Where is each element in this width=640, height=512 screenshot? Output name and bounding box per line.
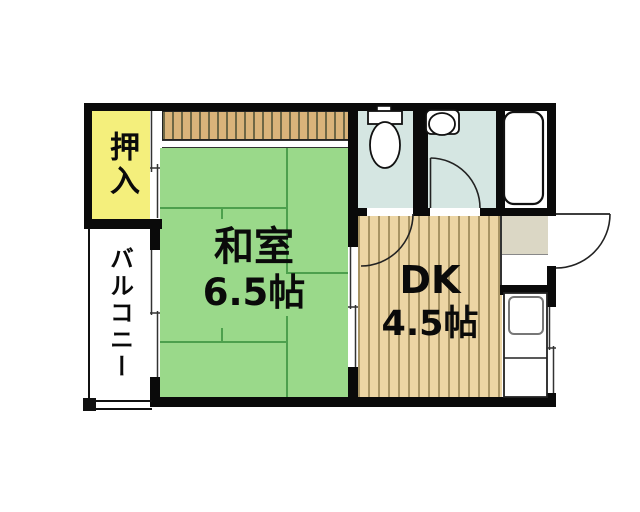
wall-toilet-washroom: [413, 111, 428, 208]
tatami-mat-line: [160, 207, 287, 209]
entry-tile-edge: [502, 254, 548, 255]
tatami-mat-line: [286, 316, 288, 397]
wall-right-mid: [547, 266, 556, 307]
entry-step: [502, 255, 548, 285]
wall-bottom: [150, 397, 556, 407]
tatami-mat-line: [160, 341, 287, 343]
wall-center-upper: [348, 111, 358, 247]
wall-sanitary-bottom-a: [348, 208, 367, 216]
wall-right-lower: [547, 393, 556, 407]
washitsu-name: 和室: [160, 224, 348, 270]
entry-tile: [502, 216, 548, 255]
kitchen-counter-icon: [504, 293, 547, 397]
bathroom-floor: [505, 111, 548, 208]
washroom-floor: [428, 111, 496, 208]
balcony-rail-bottom-inner: [96, 400, 152, 402]
tatami-mat-line: [221, 207, 223, 219]
kitchen-sink-icon: [509, 297, 543, 334]
wall-right-upper: [547, 103, 556, 214]
washitsu-size: 6.5帖: [160, 270, 348, 316]
wall-sanitary-bottom-c: [480, 208, 556, 216]
balcony-corner-post: [83, 398, 96, 411]
dk-size: 4.5帖: [358, 302, 502, 346]
floor-plan: 和室 6.5帖 DK 4.5帖 押入 バルコニー: [0, 0, 640, 512]
closet-label: 押入: [92, 111, 150, 219]
wall-balcony-stub-bottom: [150, 377, 160, 398]
wall-entry-kitchen: [500, 285, 548, 295]
tatami-mat-line: [221, 328, 223, 343]
wall-sanitary-bottom-b: [413, 208, 430, 216]
wall-balcony-stub-top: [150, 229, 160, 250]
balcony-rail-bottom-outer: [88, 408, 152, 410]
toilet-room-floor: [358, 111, 413, 208]
engawa-wood-strip: [162, 111, 350, 140]
balcony-label: バルコニー: [90, 228, 150, 398]
wall-center-lower: [348, 367, 358, 398]
washitsu-room-label: 和室 6.5帖: [160, 224, 348, 316]
entry-door-arc: [556, 214, 610, 268]
dk-room-label: DK 4.5帖: [358, 258, 502, 346]
shoji-sliding-door-band: [162, 140, 350, 148]
wall-washroom-bath: [496, 111, 505, 208]
wall-top: [84, 103, 556, 111]
wall-left-upper: [84, 103, 92, 229]
dk-name: DK: [358, 258, 502, 302]
